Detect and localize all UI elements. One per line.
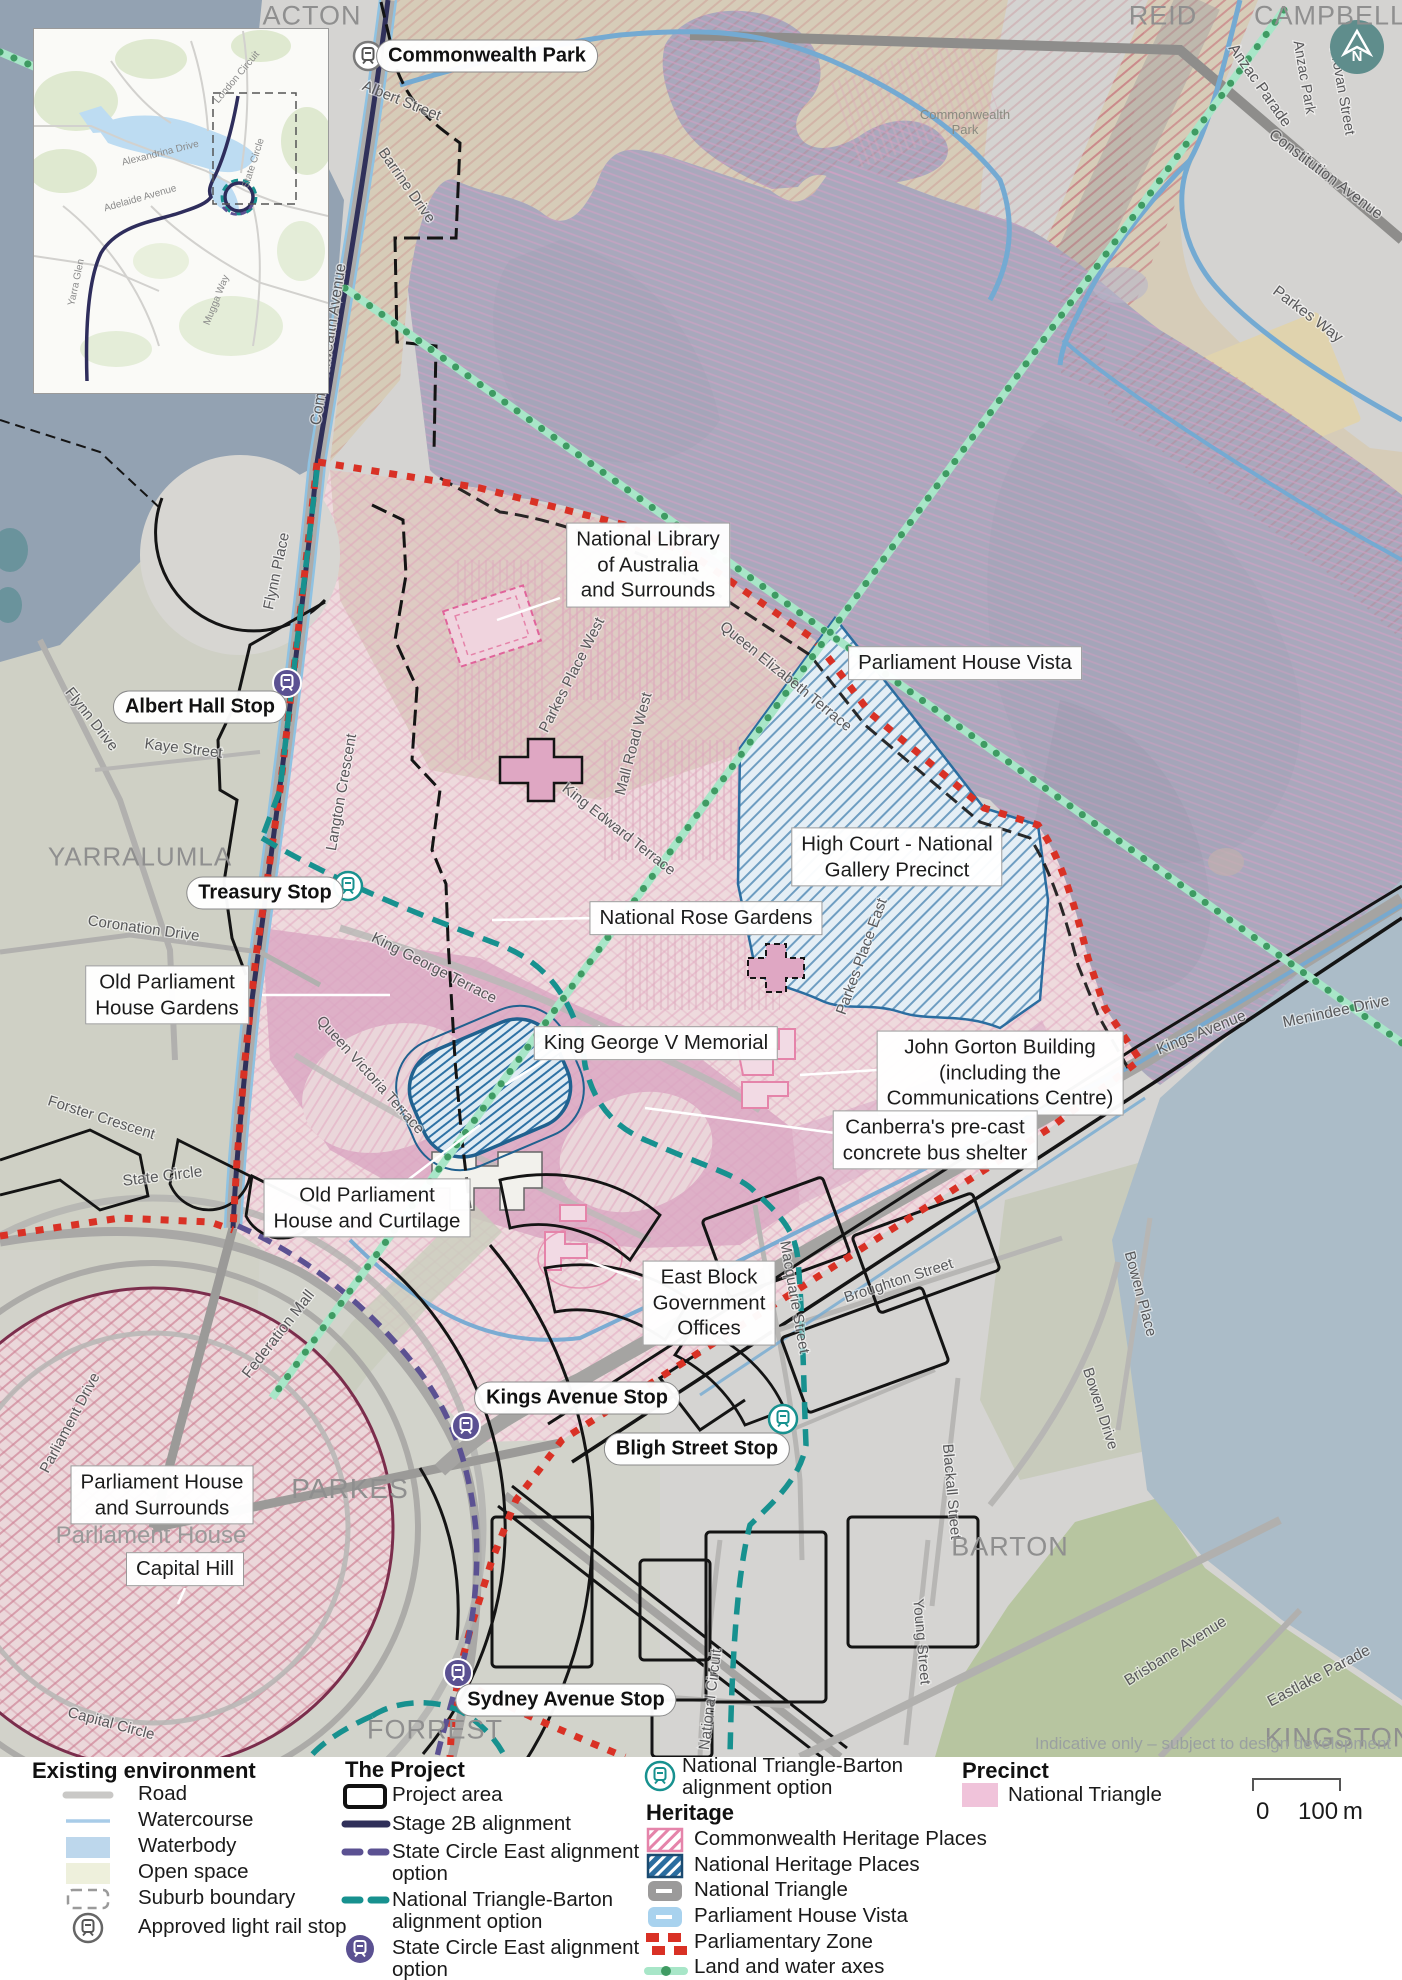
svg-text:Adelaide Avenue: Adelaide Avenue xyxy=(103,183,178,214)
svg-text:N: N xyxy=(1352,48,1363,65)
svg-text:Yarra Glen: Yarra Glen xyxy=(66,258,87,307)
